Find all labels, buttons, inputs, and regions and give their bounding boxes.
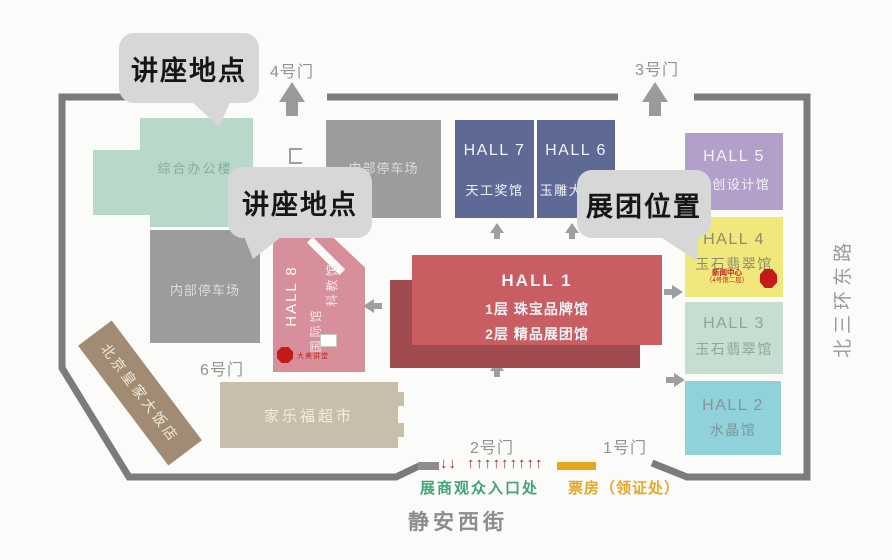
hall-8-marker-label: 大美讲堂: [297, 351, 329, 361]
hall-6-title: HALL 6: [537, 142, 615, 160]
hall-4-press-note-line1: 新闻中心: [696, 268, 758, 277]
callout-lecture-top: 讲座地点: [119, 33, 259, 103]
supermarket-tab-2: [398, 423, 404, 437]
arrow-right-upper-icon: [664, 285, 683, 299]
hall-2-block: HALL 2 水晶馆: [685, 381, 781, 455]
street-east-label: 北三环东路: [828, 228, 848, 368]
callout-exhibit-text: 展团位置: [586, 185, 702, 224]
venue-map: 综合办公楼 内部停车场 HALL 7 天工奖馆 HALL 6 玉雕大师馆 HAL…: [0, 0, 892, 560]
hall-1-block: HALL 1 1层 珠宝品牌馆 2层 精品展团馆: [412, 255, 662, 345]
arrow-right-lower-icon: [666, 373, 685, 387]
hall-3-subtitle: 玉石翡翠馆: [685, 339, 783, 359]
hall-4-marker-icon: [760, 269, 777, 288]
callout-lecture-mid: 讲座地点: [228, 167, 372, 238]
hall-7-block: HALL 7 天工奖馆: [455, 120, 534, 218]
callout-exhibit: 展团位置: [577, 170, 711, 238]
supermarket-label: 家乐福超市: [220, 405, 398, 426]
gate-3-arrow-icon: [642, 82, 668, 116]
hall-7-subtitle: 天工奖馆: [455, 180, 534, 199]
gate-3-label: 3号门: [627, 56, 687, 80]
hall-8-door-chip: [320, 334, 337, 347]
arrow-left-icon: [363, 299, 382, 313]
hall-3-title: HALL 3: [685, 315, 783, 333]
hall-4-press-note: 新闻中心 （4号馆二层）: [696, 268, 758, 286]
hall-2-title: HALL 2: [685, 397, 781, 415]
arrow-up-hall7-icon: [490, 223, 504, 239]
door-mark-icon: [289, 148, 302, 164]
hall-1-line2: 2层 精品展团馆: [412, 324, 662, 344]
hall-8-title: HALL 8: [283, 246, 303, 346]
ticket-label: 票房（领证处）: [568, 477, 680, 498]
gate-1-label: 1号门: [590, 434, 660, 458]
arrows-down-icon: ↓↓: [440, 455, 457, 472]
gate-4-label: 4号门: [262, 58, 322, 82]
hall-8-marker-icon: [277, 347, 293, 363]
hall-2-subtitle: 水晶馆: [685, 420, 781, 440]
hall-1-title: HALL 1: [412, 271, 662, 291]
hall-4-press-note-line2: （4号馆二层）: [696, 277, 758, 285]
hotel-label: 北京皇家大饭店: [96, 339, 184, 446]
hall-5-title: HALL 5: [685, 148, 783, 166]
callout-lecture-top-text: 讲座地点: [131, 49, 247, 88]
hall-3-block: HALL 3 玉石翡翠馆: [685, 302, 783, 374]
ticket-bar: [557, 462, 596, 470]
gate-6-label: 6号门: [187, 356, 257, 380]
hall-1-line1: 1层 珠宝品牌馆: [412, 299, 662, 319]
street-south-label: 静安西街: [408, 506, 508, 536]
callout-lecture-mid-text: 讲座地点: [242, 183, 358, 222]
entrance-label: 展商观众入口处: [420, 477, 539, 498]
entrance-flow-arrows: ↓↓ ↑↑↑↑↑↑↑↑↑: [440, 455, 544, 472]
hall-7-title: HALL 7: [455, 142, 534, 160]
gate-4-arrow-icon: [279, 82, 305, 116]
parking-west-label: 内部停车场: [150, 280, 260, 299]
hall-8-subtitle-2: 科教馆: [323, 254, 339, 314]
supermarket-tab-1: [398, 392, 404, 406]
entrance-bar: [418, 462, 439, 470]
arrows-up-icon: ↑↑↑↑↑↑↑↑↑: [467, 455, 544, 472]
